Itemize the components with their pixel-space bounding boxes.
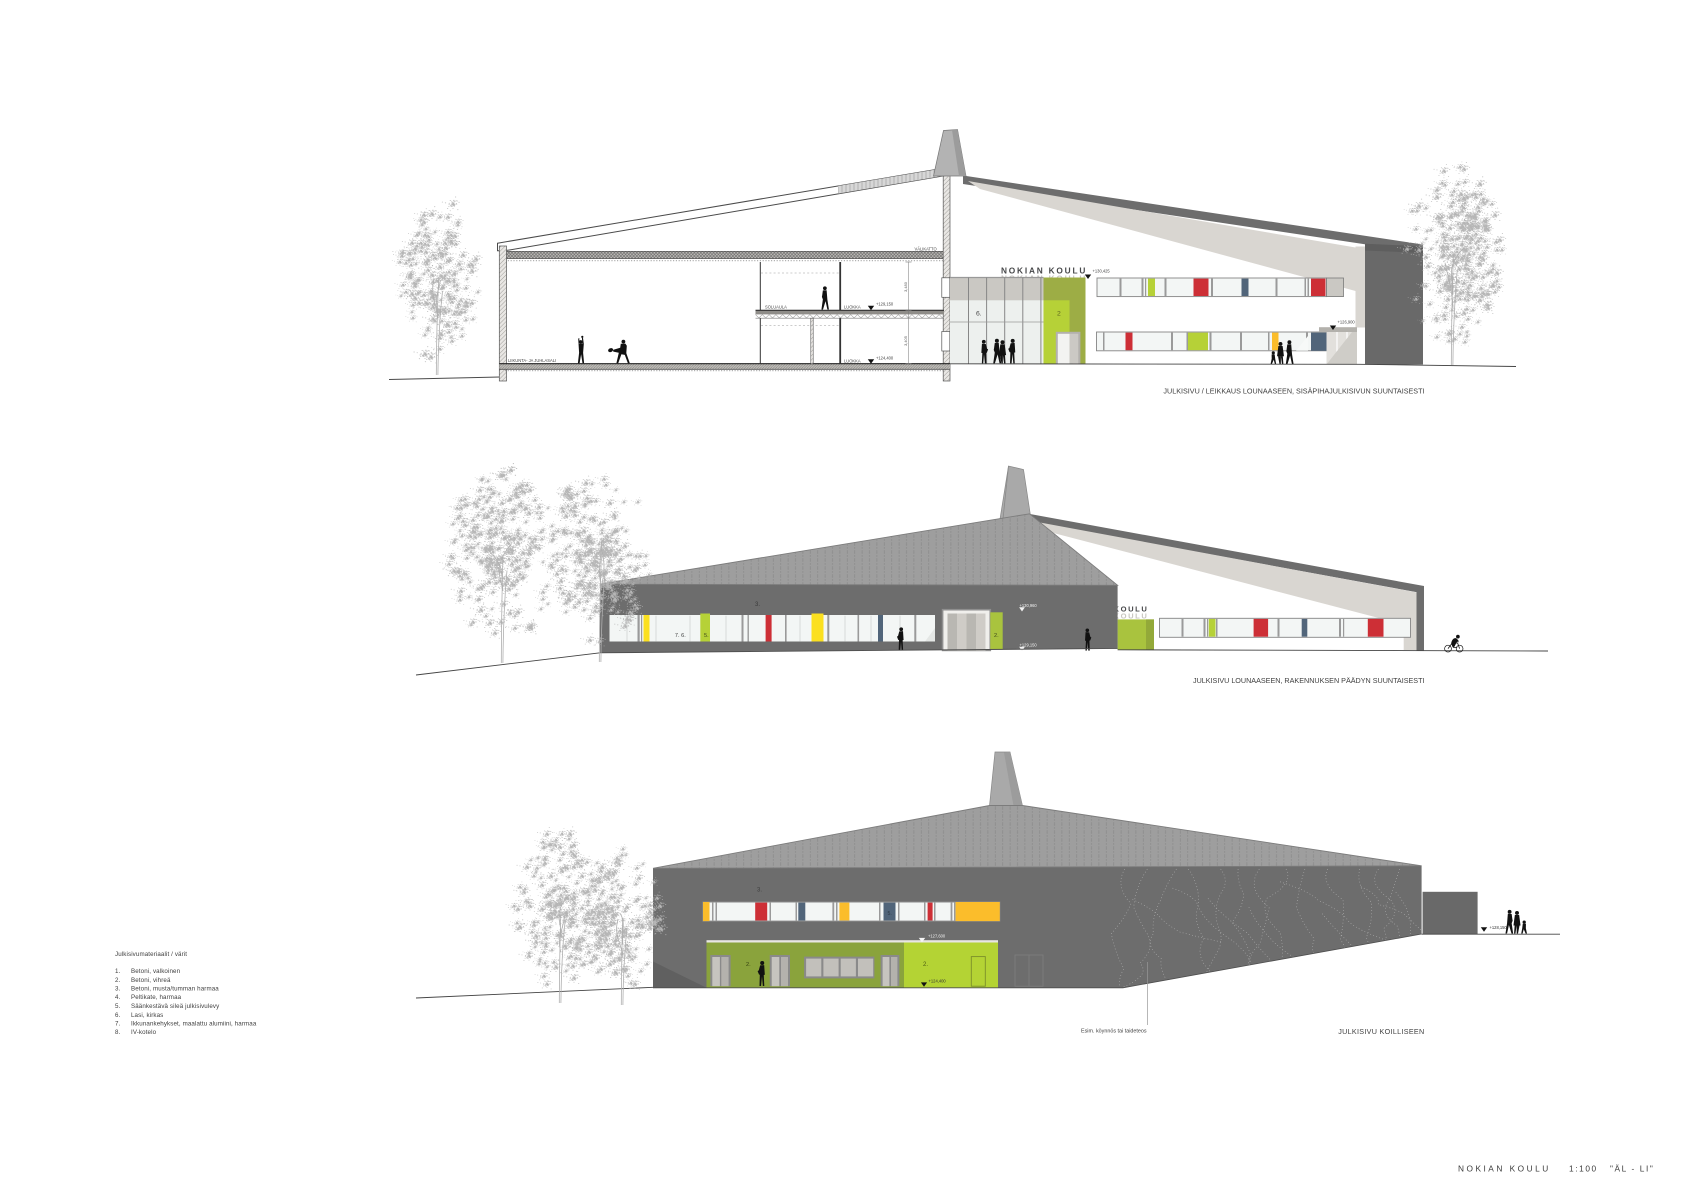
svg-text:1:100: 1:100 <box>1569 1164 1598 1174</box>
svg-text:2.: 2. <box>923 962 928 968</box>
svg-text:Julkisivumateriaalit / värit: Julkisivumateriaalit / värit <box>115 951 187 958</box>
svg-text:5.: 5. <box>115 1003 120 1010</box>
svg-text:+124,400: +124,400 <box>929 979 947 984</box>
svg-text:+129,150: +129,150 <box>876 301 894 306</box>
svg-text:+130,425: +130,425 <box>1093 269 1111 274</box>
svg-text:3,480: 3,480 <box>903 281 908 292</box>
svg-text:2.: 2. <box>746 962 751 968</box>
svg-text:Lasi, kirkas: Lasi, kirkas <box>131 1012 163 1019</box>
svg-text:Betoni, valkoinen: Betoni, valkoinen <box>131 968 181 975</box>
svg-text:SOLUAULA: SOLUAULA <box>765 305 787 310</box>
svg-text:+127,600: +127,600 <box>928 934 946 939</box>
svg-text:Säänkestävä sileä julkisivulev: Säänkestävä sileä julkisivulevy <box>131 1003 220 1010</box>
svg-text:Ikkunankehykset, maalattu alum: Ikkunankehykset, maalattu alumiini, harm… <box>131 1021 257 1028</box>
svg-text:+128,150: +128,150 <box>1490 925 1508 930</box>
svg-text:VÄLIKATTO: VÄLIKATTO <box>915 247 937 252</box>
svg-text:NOKIAN KOULU: NOKIAN KOULU <box>1458 1164 1551 1174</box>
svg-text:LUOKKA: LUOKKA <box>844 359 861 364</box>
svg-text:Betoni, vihreä: Betoni, vihreä <box>131 977 171 984</box>
svg-text:LIIKUNTA- JA JUHLASALI: LIIKUNTA- JA JUHLASALI <box>508 358 556 363</box>
svg-text:LUOKKA: LUOKKA <box>844 305 861 310</box>
svg-text:JULKISIVU / LEIKKAUS LOUNAASEE: JULKISIVU / LEIKKAUS LOUNAASEEN, SISÄPIH… <box>1163 387 1424 396</box>
svg-text:5.: 5. <box>888 911 892 917</box>
svg-text:+126,900: +126,900 <box>1338 320 1356 325</box>
svg-text:NOKIAN KOULU: NOKIAN KOULU <box>1001 266 1087 276</box>
svg-text:3,405: 3,405 <box>903 336 908 346</box>
svg-text:7. 6.: 7. 6. <box>675 633 686 639</box>
svg-text:JULKISIVU KOILLISEEN: JULKISIVU KOILLISEEN <box>1338 1027 1424 1036</box>
svg-text:6.: 6. <box>115 1012 120 1019</box>
svg-text:+130,960: +130,960 <box>1020 603 1038 608</box>
svg-text:5.: 5. <box>704 633 709 639</box>
svg-text:Esim. köynnös tai taideteos: Esim. köynnös tai taideteos <box>1081 1029 1147 1035</box>
svg-text:3.: 3. <box>757 888 762 894</box>
svg-text:2.: 2. <box>115 977 120 984</box>
svg-text:"ÄL - LI": "ÄL - LI" <box>1610 1164 1654 1174</box>
svg-text:1.: 1. <box>115 968 120 975</box>
svg-text:6.: 6. <box>976 311 982 318</box>
svg-text:7.: 7. <box>115 1021 120 1028</box>
svg-text:JULKISIVU LOUNAASEEN, RAKENNUK: JULKISIVU LOUNAASEEN, RAKENNUKSEN PÄÄDYN… <box>1193 676 1425 685</box>
svg-text:2: 2 <box>1057 311 1061 318</box>
svg-text:KOULU: KOULU <box>1114 605 1149 614</box>
svg-text:4.: 4. <box>115 994 120 1001</box>
svg-text:8.: 8. <box>115 1029 120 1036</box>
svg-text:3.: 3. <box>755 602 760 608</box>
svg-text:3.: 3. <box>115 986 120 993</box>
svg-text:Betoni, musta/tumman harmaa: Betoni, musta/tumman harmaa <box>131 986 219 993</box>
svg-text:Peltikate, harmaa: Peltikate, harmaa <box>131 994 182 1001</box>
svg-text:+124,400: +124,400 <box>876 355 894 360</box>
svg-text:2.: 2. <box>994 633 999 639</box>
svg-text:IV-kotelo: IV-kotelo <box>131 1029 157 1036</box>
